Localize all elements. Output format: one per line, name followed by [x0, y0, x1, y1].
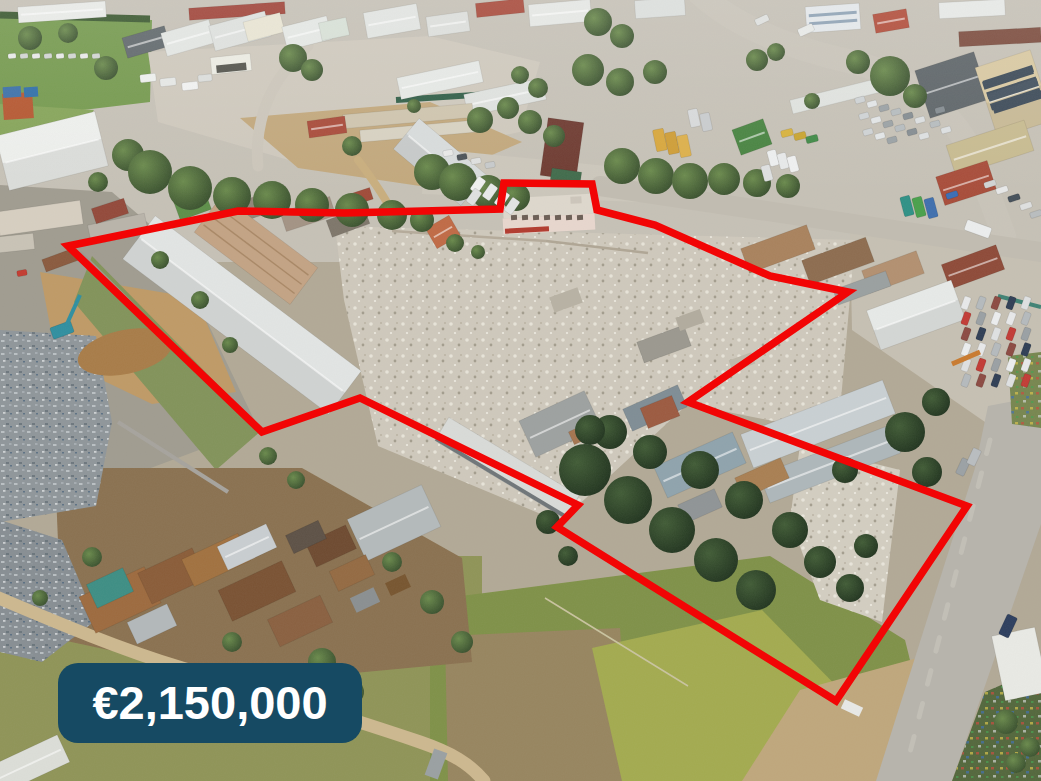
price-badge: €2,150,000 [58, 663, 362, 743]
price-text: €2,150,000 [92, 679, 327, 726]
listing-photo: €2,150,000 [0, 0, 1041, 781]
